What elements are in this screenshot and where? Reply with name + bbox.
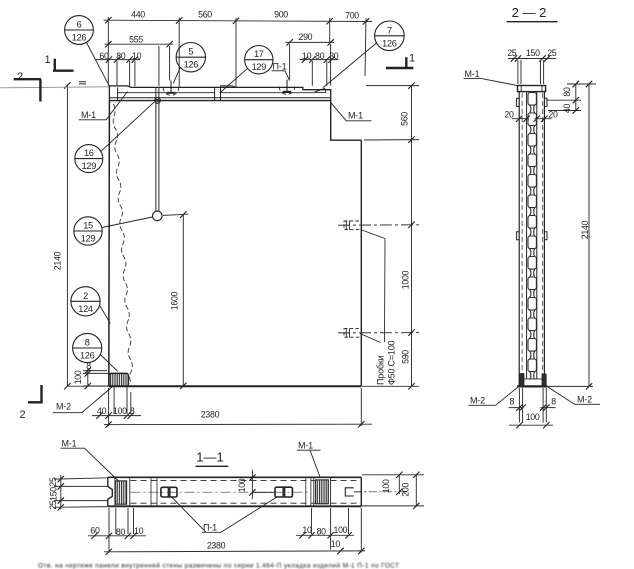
svg-text:80: 80 (116, 51, 126, 61)
svg-text:М-1: М-1 (465, 69, 480, 79)
svg-text:100: 100 (526, 412, 540, 422)
svg-text:2: 2 (83, 291, 88, 301)
svg-text:60: 60 (99, 51, 109, 61)
svg-text:1: 1 (45, 54, 51, 66)
svg-text:2140: 2140 (53, 251, 63, 270)
svg-text:М-1: М-1 (62, 439, 77, 449)
svg-text:10: 10 (302, 525, 312, 535)
svg-text:560: 560 (198, 10, 212, 20)
svg-text:П-1: П-1 (273, 62, 287, 72)
svg-text:2: 2 (20, 409, 26, 421)
svg-text:700: 700 (345, 11, 359, 21)
svg-text:1000: 1000 (400, 270, 410, 289)
svg-text:40: 40 (97, 406, 107, 416)
svg-text:8: 8 (130, 406, 135, 416)
svg-text:7: 7 (387, 25, 392, 35)
svg-text:8: 8 (85, 338, 90, 348)
svg-text:2380: 2380 (207, 541, 226, 551)
svg-text:200: 200 (401, 483, 411, 497)
svg-text:129: 129 (82, 161, 97, 171)
svg-text:590: 590 (400, 350, 410, 364)
svg-text:М-1: М-1 (348, 111, 363, 121)
svg-text:80: 80 (317, 527, 327, 537)
svg-text:М-2: М-2 (56, 402, 71, 412)
svg-text:1—1: 1—1 (196, 450, 223, 465)
svg-text:129: 129 (81, 234, 96, 244)
svg-text:100: 100 (113, 406, 127, 416)
svg-text:10: 10 (331, 539, 341, 549)
svg-text:25: 25 (547, 48, 557, 58)
svg-text:2380: 2380 (201, 410, 220, 420)
svg-text:150: 150 (48, 487, 58, 501)
svg-text:80: 80 (562, 87, 572, 97)
svg-text:10: 10 (302, 51, 312, 61)
svg-text:М-2: М-2 (470, 396, 485, 406)
svg-text:129: 129 (252, 62, 267, 72)
svg-text:100: 100 (334, 525, 348, 535)
svg-text:80: 80 (116, 527, 126, 537)
svg-text:80: 80 (315, 51, 325, 61)
svg-text:Пробки: Пробки (376, 355, 386, 385)
svg-text:Ф50 С=100: Ф50 С=100 (387, 340, 397, 385)
svg-text:1: 1 (409, 53, 415, 65)
svg-text:16: 16 (84, 148, 94, 158)
svg-text:20: 20 (548, 110, 558, 120)
svg-text:15: 15 (83, 221, 93, 231)
svg-text:126: 126 (72, 33, 87, 43)
svg-text:124: 124 (78, 304, 93, 314)
svg-text:М-2: М-2 (577, 395, 592, 405)
svg-text:40: 40 (562, 104, 572, 114)
svg-text:100: 100 (381, 479, 391, 493)
svg-text:2140: 2140 (580, 220, 590, 239)
svg-text:10: 10 (132, 51, 142, 61)
svg-text:100: 100 (237, 478, 247, 492)
svg-text:30: 30 (329, 51, 339, 61)
svg-text:5: 5 (188, 47, 193, 57)
svg-text:2 — 2: 2 — 2 (512, 5, 547, 20)
svg-text:25: 25 (48, 500, 58, 510)
svg-text:6: 6 (77, 20, 82, 30)
svg-text:100: 100 (73, 370, 83, 384)
svg-text:М-1: М-1 (81, 110, 96, 120)
svg-text:150: 150 (526, 48, 540, 58)
svg-text:25: 25 (48, 477, 58, 487)
svg-text:126: 126 (80, 351, 95, 361)
svg-text:М-1: М-1 (298, 441, 313, 451)
svg-text:560: 560 (399, 112, 409, 126)
svg-text:2: 2 (17, 71, 23, 83)
svg-text:Отв. на чертеже панели внутрен: Отв. на чертеже панели внутренней стены … (38, 562, 400, 569)
svg-text:25: 25 (507, 48, 517, 58)
svg-text:126: 126 (382, 38, 397, 48)
svg-text:900: 900 (274, 10, 288, 20)
svg-text:555: 555 (129, 35, 143, 45)
svg-text:126: 126 (184, 60, 199, 70)
svg-text:8: 8 (510, 397, 515, 407)
svg-text:440: 440 (131, 10, 145, 20)
svg-text:10: 10 (134, 526, 144, 536)
svg-text:8: 8 (551, 397, 556, 407)
svg-text:17: 17 (254, 49, 264, 59)
svg-text:1600: 1600 (170, 291, 180, 310)
svg-text:60: 60 (90, 526, 100, 536)
svg-text:20: 20 (504, 110, 514, 120)
svg-text:290: 290 (299, 32, 313, 42)
